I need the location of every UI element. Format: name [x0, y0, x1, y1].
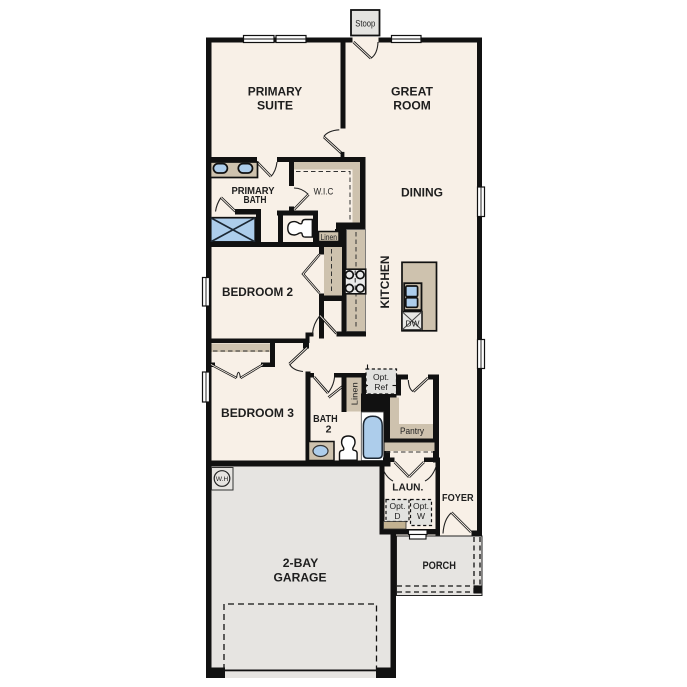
svg-text:FOYER: FOYER — [442, 493, 474, 504]
svg-text:LAUN.: LAUN. — [392, 483, 423, 494]
svg-text:DW: DW — [405, 318, 419, 328]
svg-text:GREAT: GREAT — [391, 85, 434, 99]
svg-text:W: W — [417, 511, 425, 521]
svg-text:PORCH: PORCH — [422, 560, 456, 572]
svg-text:BATH: BATH — [244, 194, 267, 206]
svg-text:Opt.: Opt. — [373, 372, 389, 382]
svg-text:DINING: DINING — [401, 188, 443, 200]
svg-text:Linen: Linen — [321, 233, 338, 242]
svg-text:ROOM: ROOM — [393, 99, 431, 113]
svg-text:2-BAY: 2-BAY — [283, 558, 319, 570]
svg-text:BEDROOM 2: BEDROOM 2 — [222, 287, 293, 299]
svg-text:W.H: W.H — [216, 476, 229, 483]
svg-text:SUITE: SUITE — [257, 99, 293, 113]
svg-text:Opt.: Opt. — [413, 501, 429, 511]
svg-text:Linen: Linen — [349, 382, 359, 405]
svg-text:GARAGE: GARAGE — [274, 572, 327, 584]
svg-text:KITCHEN: KITCHEN — [378, 256, 392, 309]
svg-text:D: D — [394, 511, 400, 521]
svg-text:PRIMARY: PRIMARY — [248, 85, 303, 99]
svg-text:2: 2 — [326, 424, 332, 436]
svg-text:Opt.: Opt. — [389, 501, 405, 511]
svg-text:Stoop: Stoop — [355, 19, 375, 29]
svg-text:BEDROOM 3: BEDROOM 3 — [221, 408, 294, 420]
svg-text:Ref: Ref — [374, 382, 388, 392]
svg-text:Pantry: Pantry — [400, 426, 424, 437]
svg-text:W.I.C: W.I.C — [314, 187, 334, 198]
